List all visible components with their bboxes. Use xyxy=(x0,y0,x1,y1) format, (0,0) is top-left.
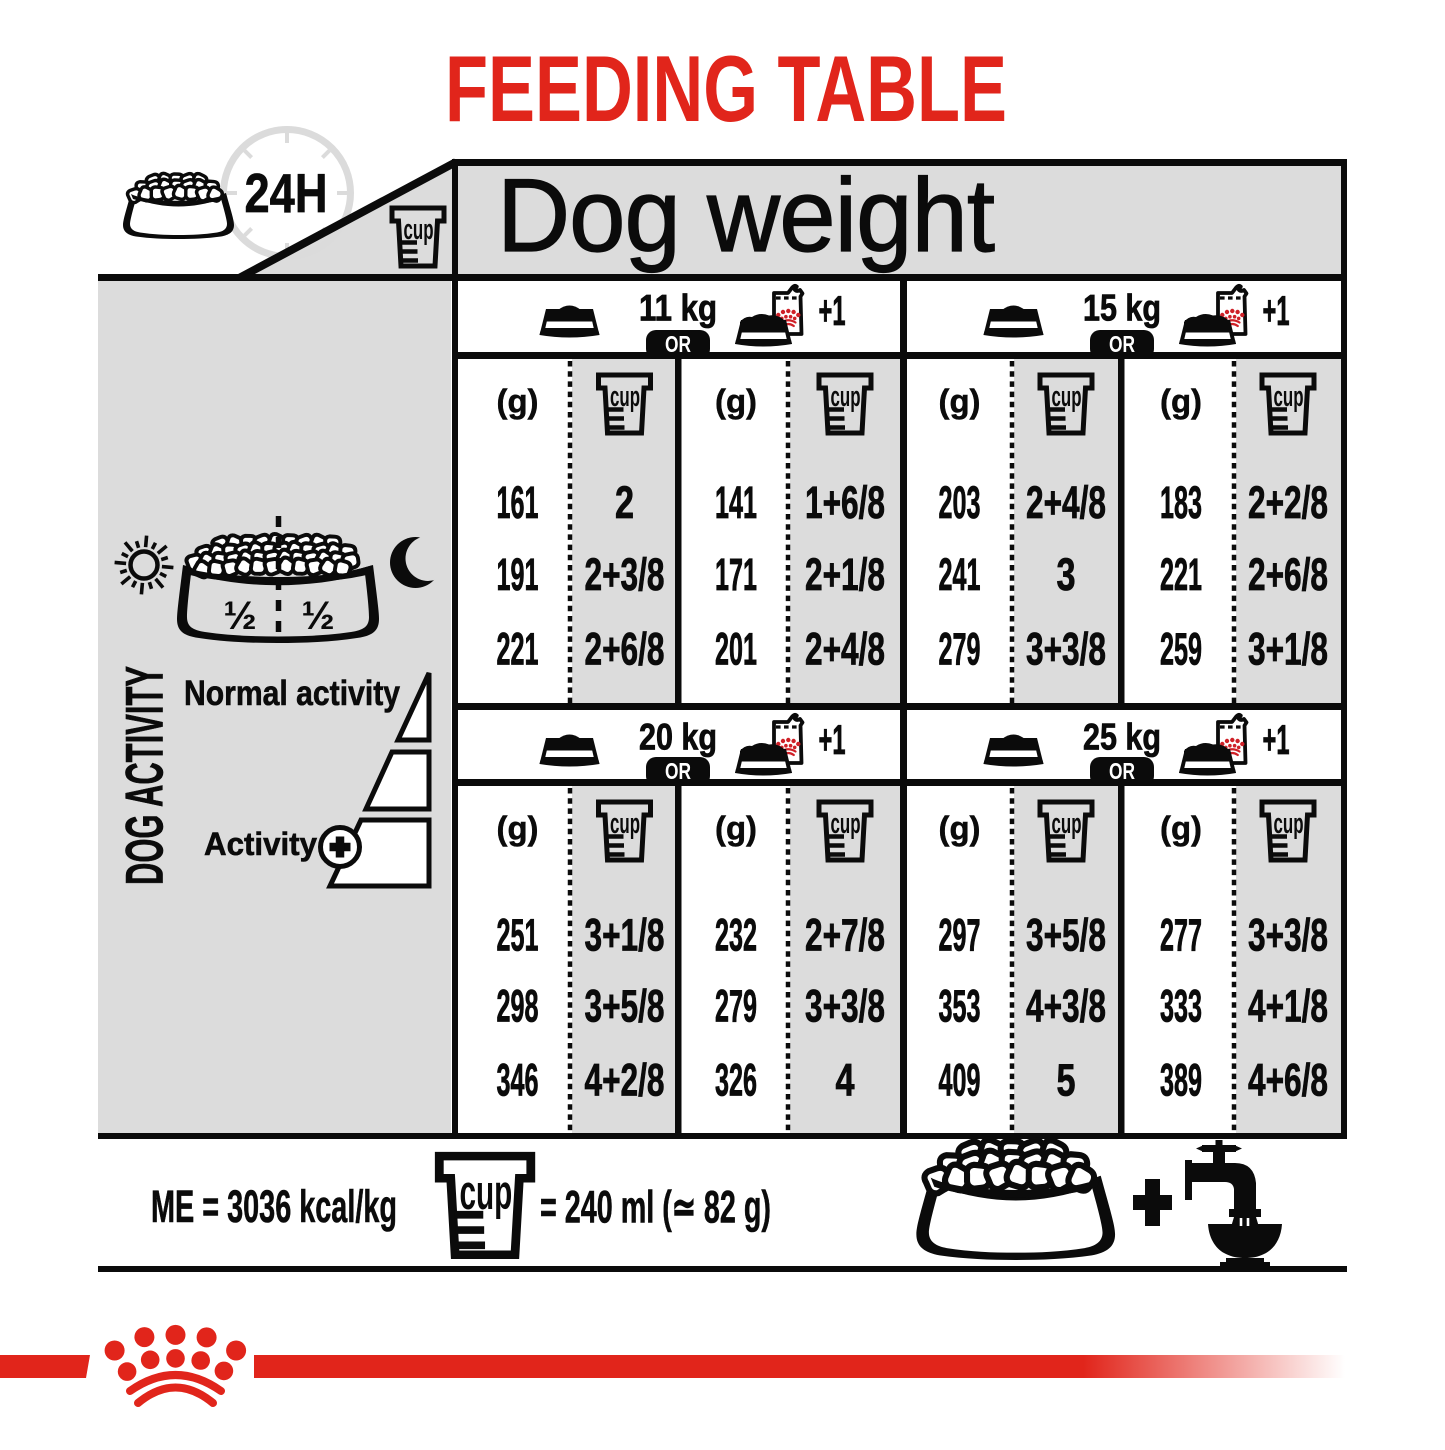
svg-text:171: 171 xyxy=(715,549,757,600)
svg-text:203: 203 xyxy=(939,477,981,528)
svg-text:2+6/8: 2+6/8 xyxy=(1248,549,1328,600)
svg-text:3: 3 xyxy=(1057,549,1076,600)
svg-text:241: 241 xyxy=(939,549,981,600)
svg-text:4+3/8: 4+3/8 xyxy=(1026,981,1106,1032)
svg-text:Activity: Activity xyxy=(204,826,317,862)
svg-text:4+2/8: 4+2/8 xyxy=(585,1055,665,1106)
svg-text:+1: +1 xyxy=(1263,287,1290,334)
svg-text:3+5/8: 3+5/8 xyxy=(585,981,665,1032)
svg-text:20 kg: 20 kg xyxy=(639,717,717,758)
svg-text:251: 251 xyxy=(497,910,539,961)
svg-text:389: 389 xyxy=(1160,1055,1202,1106)
svg-text:298: 298 xyxy=(497,981,539,1032)
svg-text:(g): (g) xyxy=(939,811,981,848)
svg-text:3+3/8: 3+3/8 xyxy=(1026,624,1106,675)
svg-text:1+6/8: 1+6/8 xyxy=(805,477,885,528)
svg-text:(g): (g) xyxy=(715,384,757,421)
svg-text:(g): (g) xyxy=(497,811,539,848)
svg-text:24H: 24H xyxy=(245,163,328,224)
svg-text:183: 183 xyxy=(1160,477,1202,528)
svg-text:259: 259 xyxy=(1160,624,1202,675)
svg-text:221: 221 xyxy=(497,624,539,675)
svg-text:3+3/8: 3+3/8 xyxy=(805,981,885,1032)
svg-text:4+1/8: 4+1/8 xyxy=(1248,981,1328,1032)
svg-text:(g): (g) xyxy=(497,384,539,421)
svg-text:(g): (g) xyxy=(1160,811,1202,848)
svg-text:221: 221 xyxy=(1160,549,1202,600)
svg-text:5: 5 xyxy=(1057,1055,1076,1106)
svg-text:277: 277 xyxy=(1160,910,1202,961)
svg-text:2: 2 xyxy=(615,477,634,528)
svg-text:232: 232 xyxy=(715,910,757,961)
svg-text:3+1/8: 3+1/8 xyxy=(1248,624,1328,675)
svg-text:OR: OR xyxy=(665,331,691,357)
svg-text:DOG ACTIVITY: DOG ACTIVITY xyxy=(116,666,175,885)
svg-text:161: 161 xyxy=(497,477,539,528)
svg-text:+1: +1 xyxy=(819,287,846,334)
svg-text:191: 191 xyxy=(497,549,539,600)
svg-text:201: 201 xyxy=(715,624,757,675)
svg-text:141: 141 xyxy=(715,477,757,528)
svg-text:15 kg: 15 kg xyxy=(1083,288,1161,329)
svg-text:2+7/8: 2+7/8 xyxy=(805,910,885,961)
svg-text:FEEDING TABLE: FEEDING TABLE xyxy=(445,36,1007,141)
svg-text:OR: OR xyxy=(665,758,691,784)
svg-text:4: 4 xyxy=(836,1055,855,1106)
svg-text:346: 346 xyxy=(497,1055,539,1106)
svg-text:11 kg: 11 kg xyxy=(639,288,717,329)
svg-text:= 240 ml (≃ 82 g): = 240 ml (≃ 82 g) xyxy=(540,1182,771,1233)
svg-text:279: 279 xyxy=(939,624,981,675)
svg-text:½: ½ xyxy=(223,594,256,638)
svg-text:353: 353 xyxy=(939,981,981,1032)
svg-text:2+4/8: 2+4/8 xyxy=(805,624,885,675)
svg-text:333: 333 xyxy=(1160,981,1202,1032)
svg-text:(g): (g) xyxy=(715,811,757,848)
svg-text:4+6/8: 4+6/8 xyxy=(1248,1055,1328,1106)
svg-text:297: 297 xyxy=(939,910,981,961)
svg-text:OR: OR xyxy=(1109,758,1135,784)
svg-text:Normal activity: Normal activity xyxy=(184,674,400,713)
svg-text:3+1/8: 3+1/8 xyxy=(585,910,665,961)
svg-text:(g): (g) xyxy=(939,384,981,421)
svg-text:2+6/8: 2+6/8 xyxy=(585,624,665,675)
svg-text:2+2/8: 2+2/8 xyxy=(1248,477,1328,528)
svg-text:OR: OR xyxy=(1109,331,1135,357)
svg-text:½: ½ xyxy=(301,594,334,638)
svg-text:3+3/8: 3+3/8 xyxy=(1248,910,1328,961)
svg-text:2+4/8: 2+4/8 xyxy=(1026,477,1106,528)
svg-text:+1: +1 xyxy=(1263,716,1290,763)
svg-text:Dog weight: Dog weight xyxy=(497,158,995,274)
svg-text:326: 326 xyxy=(715,1055,757,1106)
svg-text:2+1/8: 2+1/8 xyxy=(805,549,885,600)
svg-text:3+5/8: 3+5/8 xyxy=(1026,910,1106,961)
svg-text:ME = 3036 kcal/kg: ME = 3036 kcal/kg xyxy=(151,1181,397,1232)
svg-text:(g): (g) xyxy=(1160,384,1202,421)
svg-text:+1: +1 xyxy=(819,716,846,763)
svg-text:25 kg: 25 kg xyxy=(1083,717,1161,758)
svg-text:2+3/8: 2+3/8 xyxy=(585,549,665,600)
svg-text:279: 279 xyxy=(715,981,757,1032)
svg-text:409: 409 xyxy=(939,1055,981,1106)
